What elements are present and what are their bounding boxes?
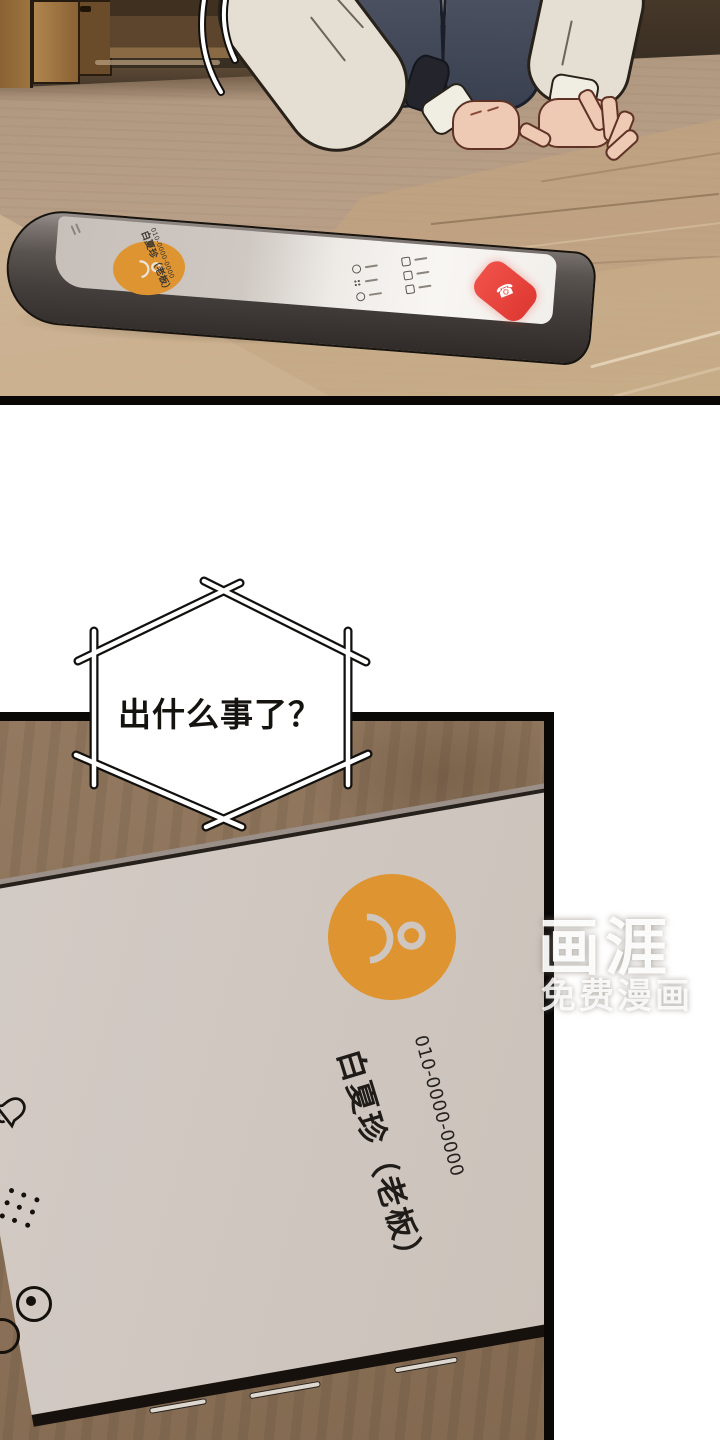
- end-call-icon: ☎: [493, 279, 517, 303]
- record-icon-dot: [26, 1296, 36, 1306]
- panel-top: 010-0000-0000 白夏珍（老板） ☎: [0, 0, 720, 397]
- motion-lines: [195, 0, 255, 100]
- cabinet-door: [0, 0, 33, 88]
- add-call-icon: [405, 278, 456, 294]
- panel2-right-border: [544, 712, 554, 1440]
- end-call-button[interactable]: ☎: [469, 256, 542, 326]
- person-avatar-icon: [328, 874, 456, 1000]
- dial-pad-icon: [354, 272, 404, 286]
- bluetooth-icon: [403, 264, 454, 280]
- record-icon: [351, 257, 402, 273]
- mute-icon: [356, 285, 407, 301]
- cabinet-handle: [80, 6, 91, 12]
- watermark-subtitle: 免费漫画: [541, 968, 693, 1019]
- speech-bubble-text: 出什么事了？: [95, 688, 345, 736]
- call-action-icons: [351, 246, 470, 320]
- left-hand-fist: [452, 100, 520, 150]
- comic-page: { "comic": { "bubble": { "text": "出什么事了？…: [0, 0, 720, 1440]
- panel-divider-top: [0, 396, 720, 405]
- status-bar-time: [69, 223, 81, 236]
- speaker-icon: [401, 250, 452, 266]
- cabinet-leg: [32, 0, 80, 84]
